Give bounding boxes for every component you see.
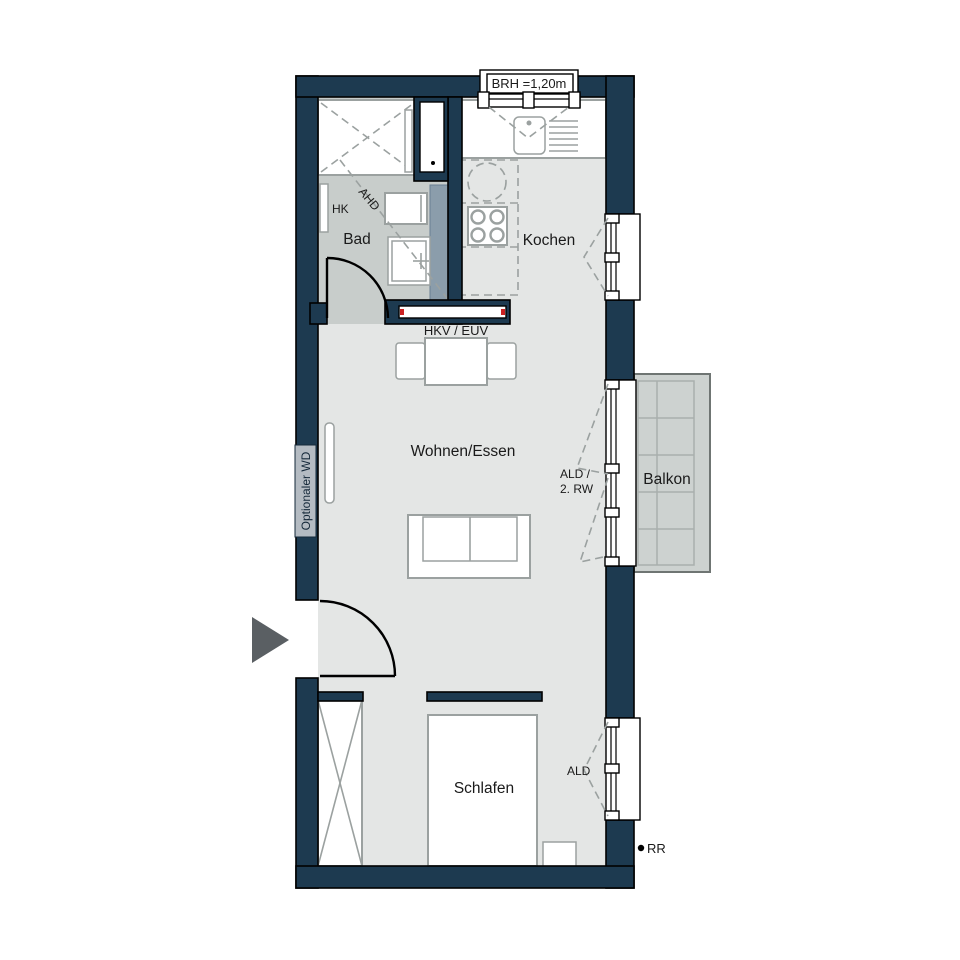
bedroom-furniture: [318, 700, 576, 867]
dining-chair-right: [487, 343, 516, 379]
wall-bottom: [296, 866, 634, 888]
hk-label: HK: [332, 202, 349, 216]
wall-top-left: [296, 76, 482, 97]
floor-plan-page: Optionaler WD RR BRH =1,20m Bad HK AHD K…: [0, 0, 960, 960]
window-top-block: [523, 92, 534, 108]
window-balcony-block: [605, 464, 619, 473]
rr-dot-icon: [638, 845, 644, 851]
ald-label: ALD: [567, 764, 591, 778]
dining-table: [425, 338, 487, 385]
window-top-block: [478, 92, 489, 108]
hkv-cabinet: [399, 306, 506, 318]
shower: [318, 100, 418, 175]
shaft-dot: [431, 161, 435, 165]
hkv-marker-left: [400, 309, 404, 315]
room-label-schlafen: Schlafen: [454, 780, 514, 797]
window-balcony-block: [605, 557, 619, 566]
shower-glass-panel: [405, 110, 412, 172]
ald-rw-label-line1: ALD /: [560, 467, 591, 481]
bathroom-radiator: [320, 184, 328, 232]
wall-right-2: [606, 300, 634, 380]
living-radiator: [325, 423, 334, 503]
window-kitchen-block: [605, 291, 619, 300]
kitchen-faucet: [527, 121, 532, 126]
floor-plan-drawing: Optionaler WD RR BRH =1,20m Bad HK AHD K…: [0, 0, 960, 960]
brh-label: BRH =1,20m: [492, 76, 567, 91]
wall-right-3: [606, 566, 634, 718]
wall-right-1: [606, 76, 634, 214]
entrance-arrow-icon: [252, 617, 289, 663]
ald-rw-label-line2: 2. RW: [560, 482, 594, 496]
wall-bath-door-stub: [310, 303, 327, 324]
window-balcony-block: [605, 508, 619, 517]
bedroom-partition: [427, 692, 542, 701]
window-top-block: [569, 92, 580, 108]
optional-wd-label: Optionaler WD: [299, 451, 313, 530]
room-label-balkon: Balkon: [643, 471, 690, 488]
rr-marker: RR: [638, 841, 666, 856]
nightstand: [543, 842, 576, 867]
dining-chair-left: [396, 343, 425, 379]
wall-bath-kitchen: [448, 97, 462, 324]
window-kitchen-block: [605, 253, 619, 262]
shaft: [420, 102, 444, 172]
hkv-euv-box: [399, 306, 506, 318]
hkv-euv-label: HKV / EUV: [424, 323, 489, 338]
room-label-kochen: Kochen: [523, 232, 576, 249]
hkv-marker-right: [501, 309, 505, 315]
wardrobe-wall-bar: [318, 692, 363, 701]
window-bedroom-block: [605, 764, 619, 773]
rr-label: RR: [647, 841, 666, 856]
wall-left-lower: [296, 678, 318, 888]
room-label-bad: Bad: [343, 231, 371, 248]
room-label-wohnen-essen: Wohnen/Essen: [411, 443, 516, 460]
optional-wd: Optionaler WD: [295, 445, 316, 537]
